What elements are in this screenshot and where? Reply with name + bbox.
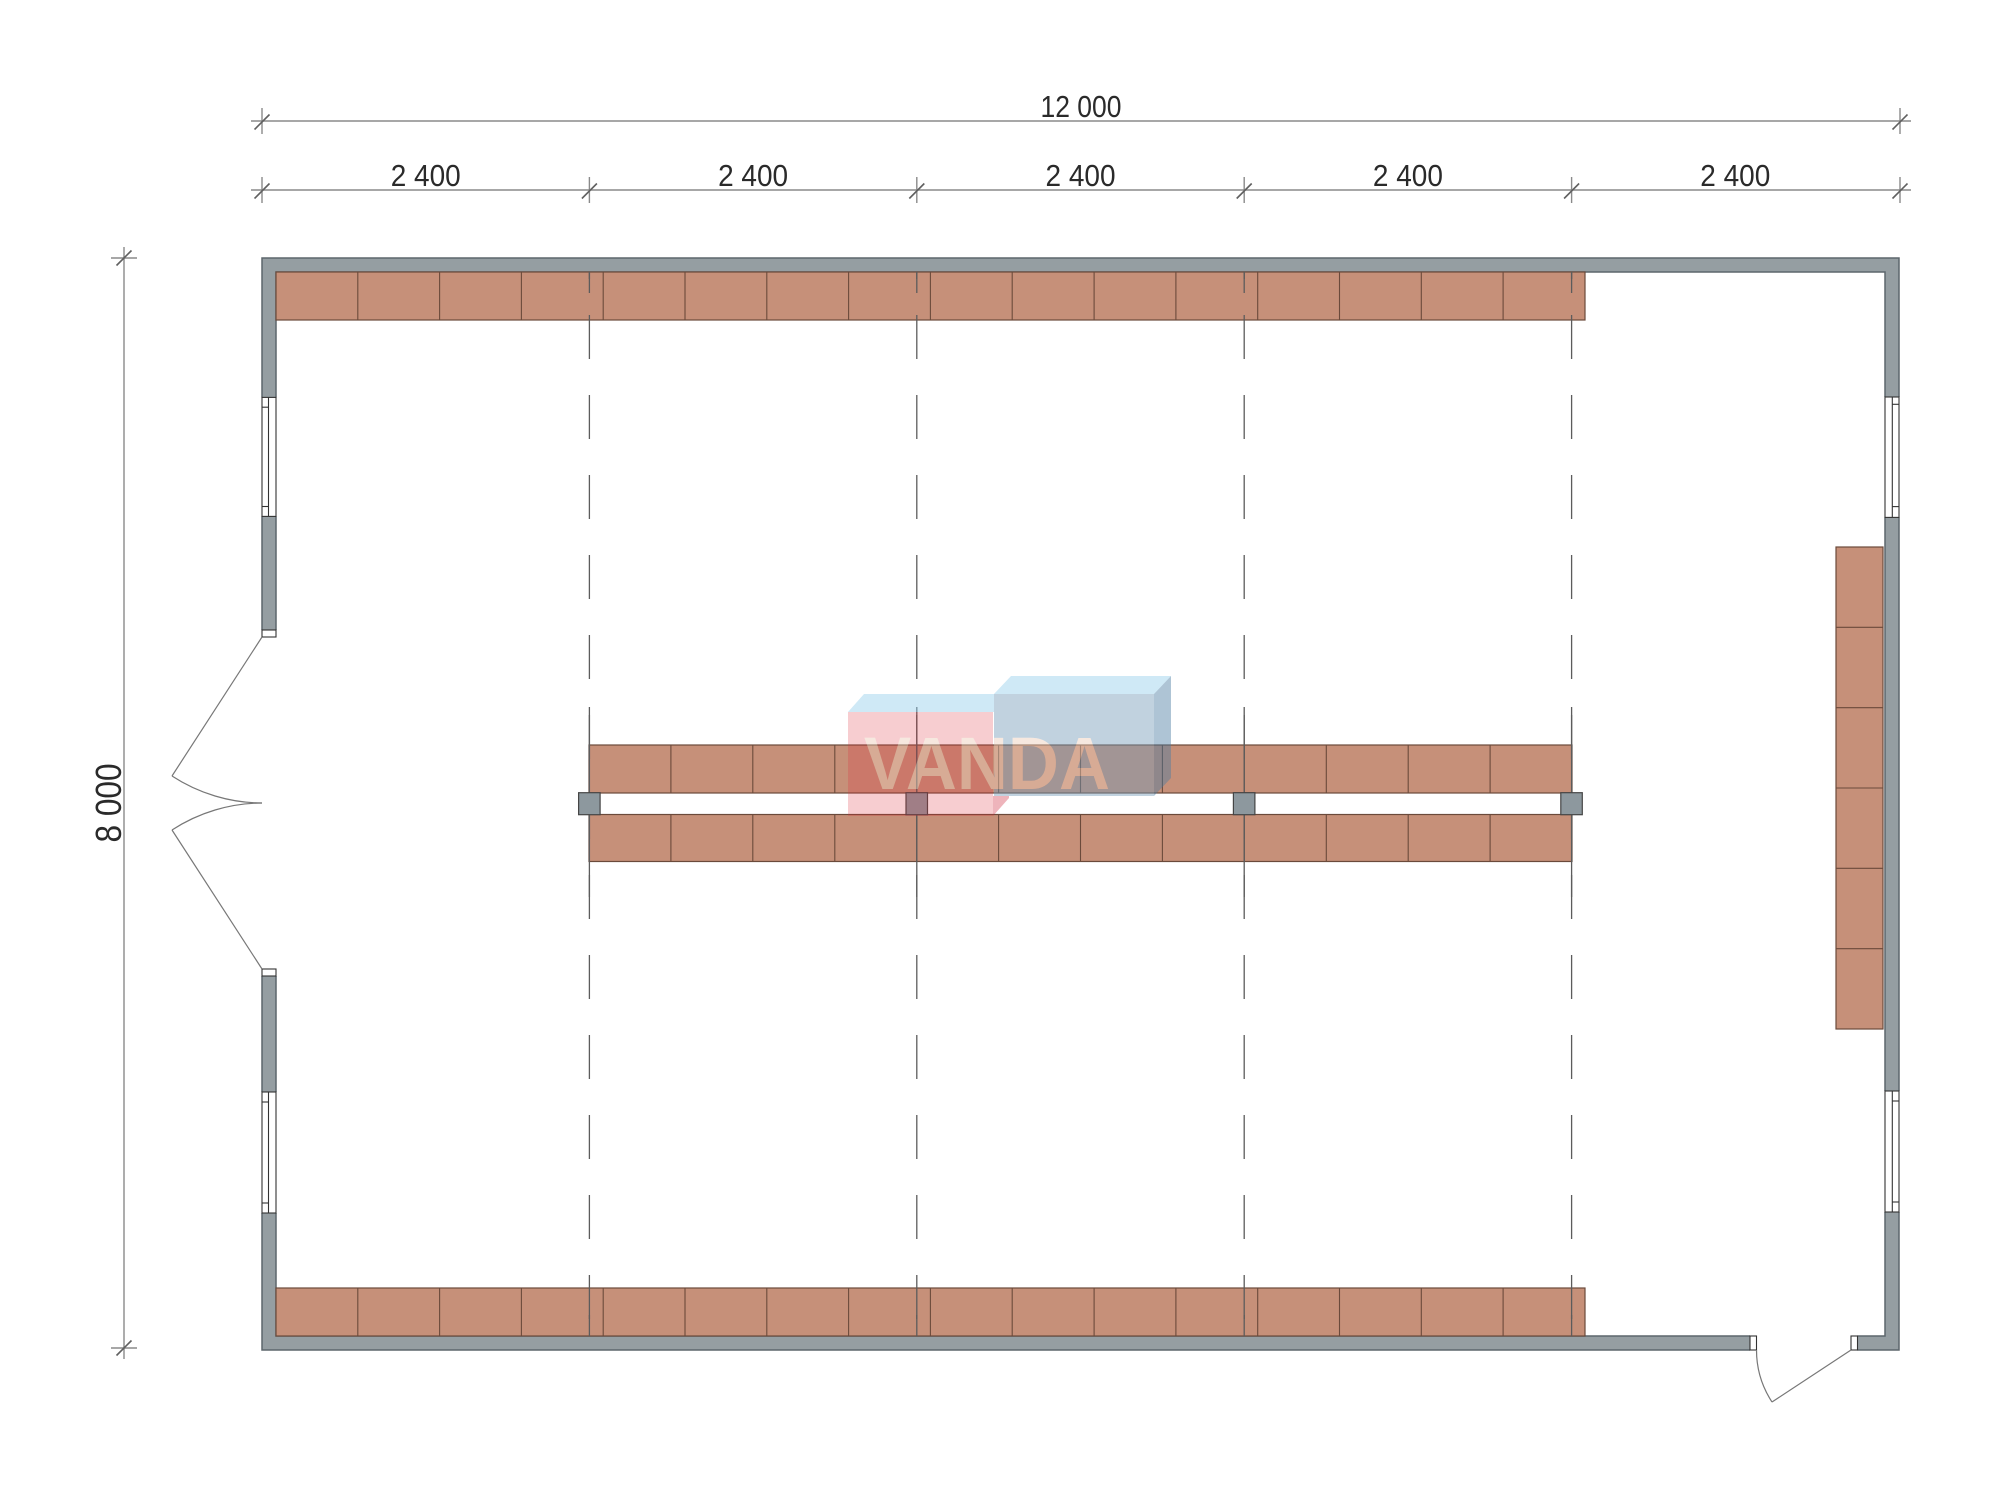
svg-text:VANDA: VANDA — [864, 722, 1110, 805]
svg-text:2 400: 2 400 — [391, 158, 461, 193]
svg-text:8 000: 8 000 — [88, 764, 129, 843]
svg-text:12 000: 12 000 — [1041, 89, 1122, 124]
svg-text:2 400: 2 400 — [1700, 158, 1770, 193]
svg-text:2 400: 2 400 — [718, 158, 788, 193]
svg-text:2 400: 2 400 — [1046, 158, 1116, 193]
svg-text:2 400: 2 400 — [1373, 158, 1443, 193]
